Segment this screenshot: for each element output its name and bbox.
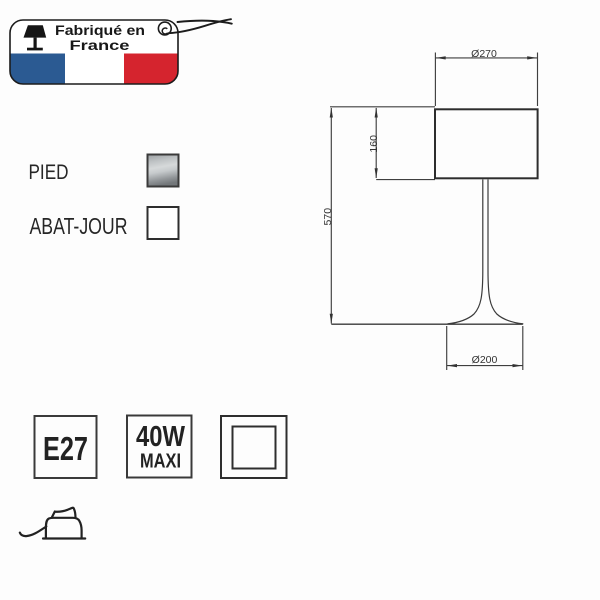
svg-text:Ø270: Ø270	[471, 48, 497, 60]
svg-text:Ø200: Ø200	[472, 354, 498, 366]
svg-text:570: 570	[322, 208, 334, 226]
svg-text:40W: 40W	[136, 421, 186, 453]
svg-text:MAXI: MAXI	[140, 451, 181, 473]
svg-text:Fabriqué en: Fabriqué en	[55, 22, 145, 38]
svg-text:160: 160	[368, 135, 380, 153]
svg-text:E27: E27	[43, 430, 88, 467]
svg-text:PIED: PIED	[29, 160, 69, 184]
svg-text:France: France	[70, 37, 130, 53]
svg-text:ABAT-JOUR: ABAT-JOUR	[30, 213, 128, 239]
